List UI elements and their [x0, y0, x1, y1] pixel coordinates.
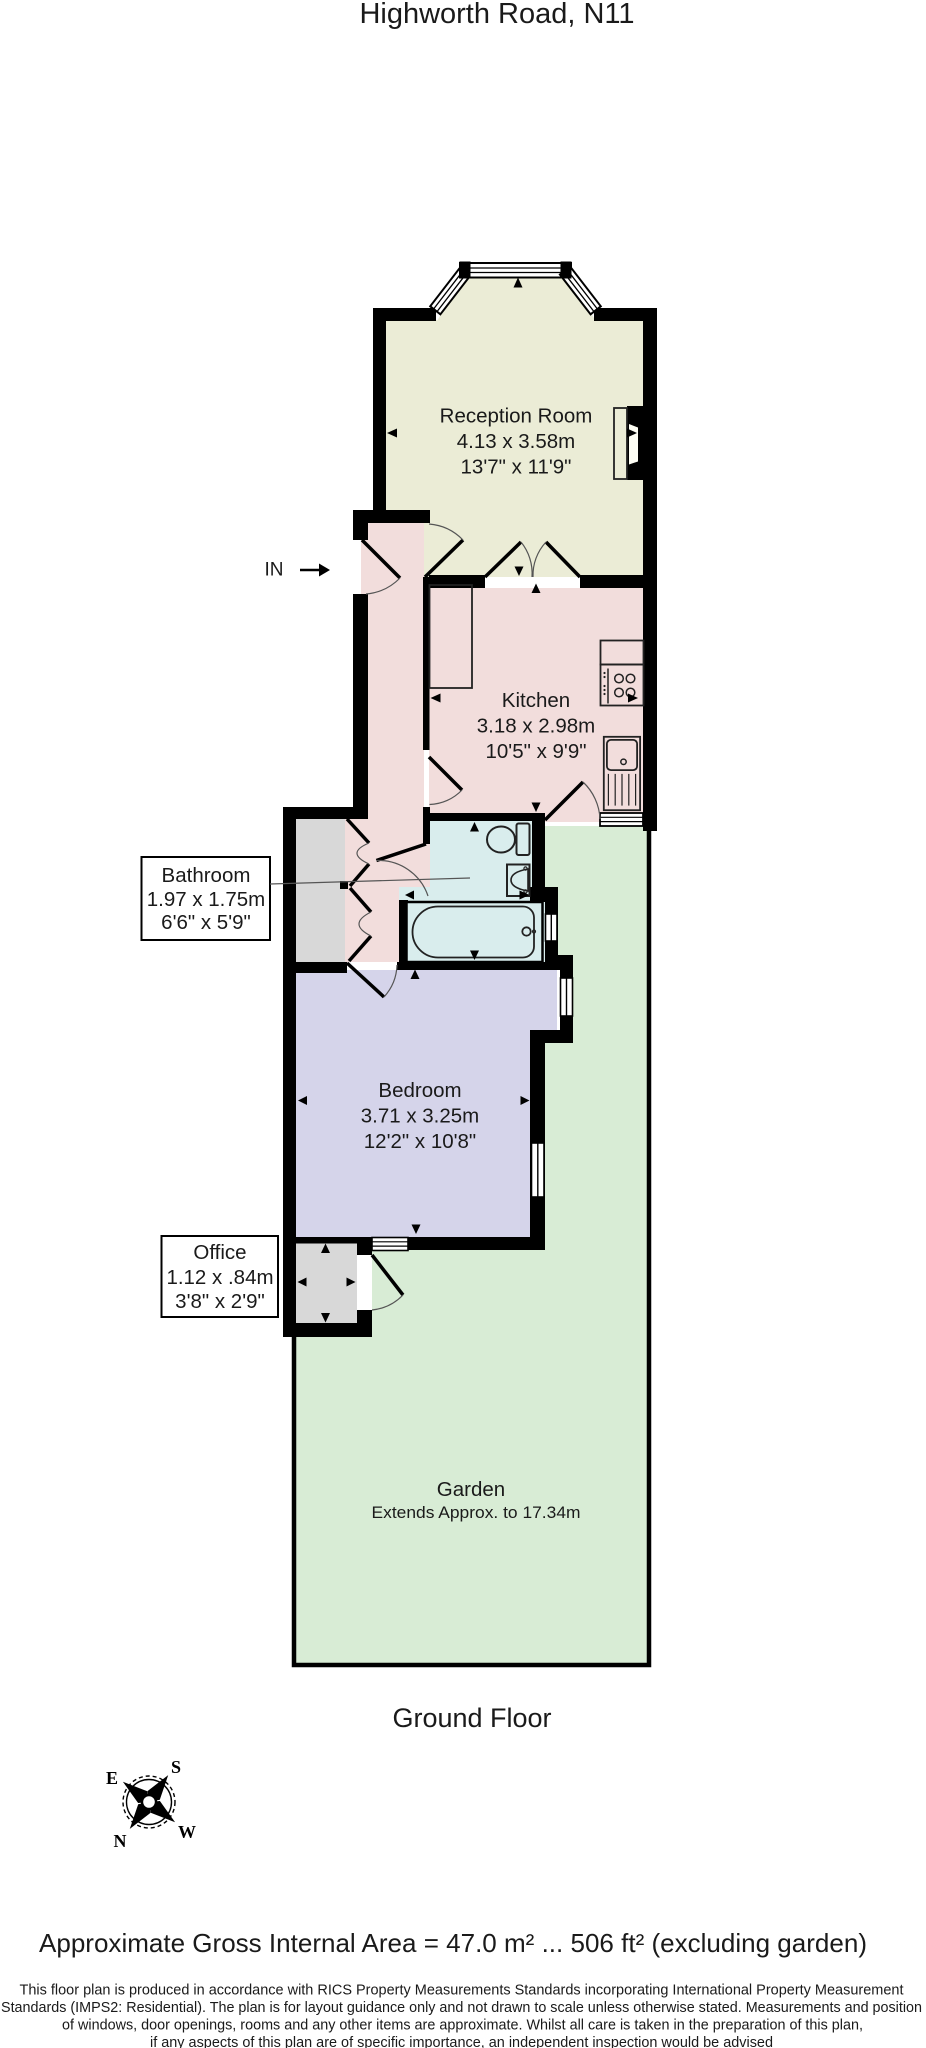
svg-text:Garden: Garden: [437, 1478, 505, 1501]
svg-text:Reception Room: Reception Room: [440, 405, 593, 428]
svg-text:Office: Office: [193, 1241, 246, 1264]
svg-text:1.12 x .84m: 1.12 x .84m: [166, 1266, 273, 1289]
svg-text:3'8" x 2'9": 3'8" x 2'9": [175, 1290, 265, 1313]
svg-text:13'7" x 11'9": 13'7" x 11'9": [461, 456, 572, 479]
svg-text:if any aspects of this plan ar: if any aspects of this plan are of speci…: [150, 2035, 773, 2048]
svg-text:Standards (IMPS2: Residential): Standards (IMPS2: Residential). The plan…: [1, 2000, 922, 2016]
svg-text:10'5" x 9'9": 10'5" x 9'9": [485, 740, 586, 763]
svg-text:S: S: [171, 1757, 181, 1777]
svg-text:W: W: [178, 1822, 196, 1842]
svg-text:6'6" x 5'9": 6'6" x 5'9": [161, 911, 251, 934]
svg-text:3.71 x 3.25m: 3.71 x 3.25m: [361, 1105, 480, 1128]
svg-text:N: N: [114, 1831, 127, 1851]
svg-text:E: E: [106, 1768, 118, 1788]
svg-text:Approximate Gross Internal Are: Approximate Gross Internal Area = 47.0 m…: [39, 1928, 867, 1958]
svg-text:1.97 x 1.75m: 1.97 x 1.75m: [147, 888, 266, 911]
svg-text:3.18 x 2.98m: 3.18 x 2.98m: [477, 715, 596, 738]
svg-text:Ground Floor: Ground Floor: [392, 1703, 551, 1733]
svg-text:Bathroom: Bathroom: [162, 864, 251, 887]
svg-text:Kitchen: Kitchen: [502, 689, 570, 712]
svg-text:Bedroom: Bedroom: [378, 1079, 461, 1102]
svg-text:IN: IN: [265, 560, 284, 581]
svg-text:12'2" x 10'8": 12'2" x 10'8": [364, 1130, 476, 1153]
svg-text:This floor plan is produced in: This floor plan is produced in accordanc…: [20, 1983, 904, 1999]
svg-text:4.13 x 3.58m: 4.13 x 3.58m: [457, 430, 576, 453]
svg-text:Extends Approx. to 17.34m: Extends Approx. to 17.34m: [372, 1503, 581, 1522]
svg-text:of windows, door openings, roo: of windows, door openings, rooms and any…: [62, 2018, 863, 2034]
svg-text:Highworth Road, N11: Highworth Road, N11: [359, 0, 634, 30]
